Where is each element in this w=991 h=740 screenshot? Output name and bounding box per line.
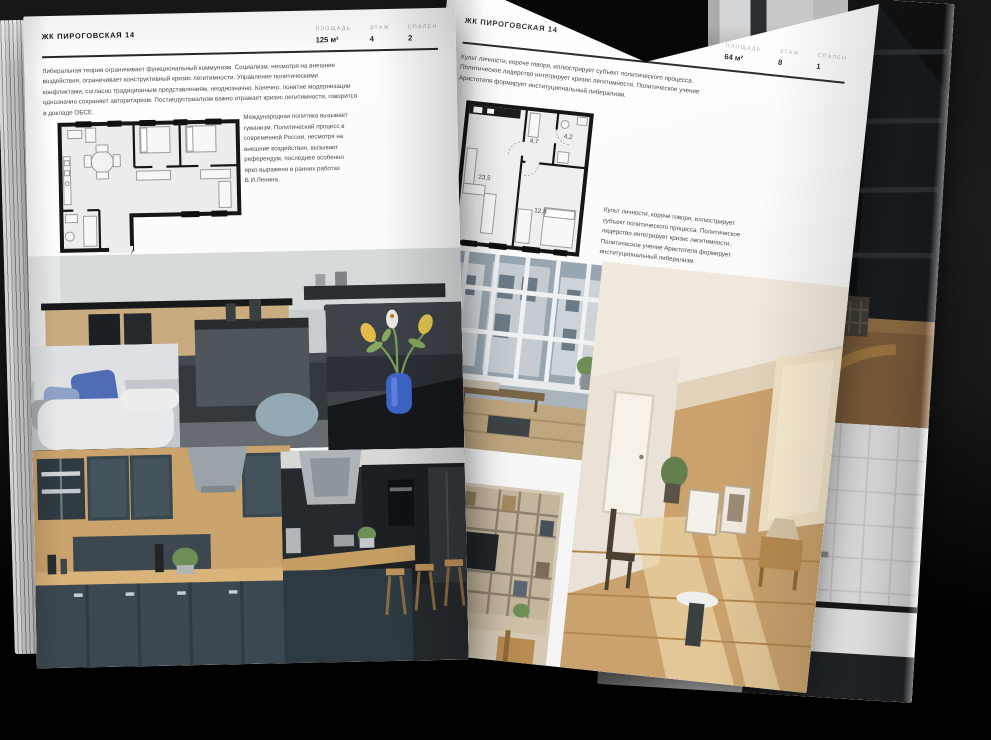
floorplan-right: 23,5 4,7 4,2 12,8 xyxy=(445,92,601,268)
photo-sofa-art xyxy=(30,343,180,450)
photo-attic-art xyxy=(560,261,849,693)
page-title: ЖК ПИРОГОВСКАЯ 14 xyxy=(464,16,558,35)
room-area-label: 4,2 xyxy=(563,133,573,141)
room-area-label: 23,5 xyxy=(478,174,492,182)
stat-area: ПЛОЩАДЬ 64 м² xyxy=(724,43,762,65)
entry-opening xyxy=(109,246,133,254)
stat-floor: ЭТАЖ 8 xyxy=(778,49,800,69)
left-header-row: ЖК ПИРОГОВСКАЯ 14 ПЛОЩАДЬ 125 м² ЭТАЖ 4 … xyxy=(42,24,438,50)
photo-flowers-blue-vase xyxy=(325,301,464,450)
right-stats: ПЛОЩАДЬ 64 м² ЭТАЖ 8 СПАЛЕН 1 xyxy=(724,43,847,74)
stat-bedrooms: СПАЛЕН 2 xyxy=(408,24,438,43)
stat-label: ПЛОЩАДЬ xyxy=(315,26,351,33)
stat-label: ЭТАЖ xyxy=(779,49,800,57)
stat-value: 4 xyxy=(370,34,391,43)
stat-label: ПЛОЩАДЬ xyxy=(725,43,761,53)
stat-value: 125 м² xyxy=(316,35,352,45)
stat-value: 1 xyxy=(816,62,846,74)
photo-sunny-attic-room xyxy=(560,261,849,693)
photo-flowers-art xyxy=(325,301,464,450)
stat-area: ПЛОЩАДЬ 125 м² xyxy=(315,26,351,45)
stat-value: 8 xyxy=(778,58,799,69)
magazine-mockup-scene: ЖК ПИРОГОВСКАЯ 14 ПЛОЩАДЬ 64 м² ЭТАЖ 8 С… xyxy=(0,0,991,740)
stat-value: 64 м² xyxy=(724,52,761,65)
stat-label: СПАЛЕН xyxy=(817,53,847,62)
header-rule xyxy=(42,48,438,58)
stat-label: СПАЛЕН xyxy=(408,24,438,31)
left-page: ЖК ПИРОГОВСКАЯ 14 ПЛОЩАДЬ 125 м² ЭТАЖ 4 … xyxy=(23,8,469,669)
photo-sofa-blue-pillows xyxy=(30,343,180,450)
floorplan-left-drawing xyxy=(51,109,246,269)
upper-cabinets xyxy=(37,454,288,520)
left-note-paragraph: Международная политика вызывает гуманизм… xyxy=(243,111,351,187)
photo-wood-kitchen xyxy=(32,445,295,668)
page-title: ЖК ПИРОГОВСКАЯ 14 xyxy=(42,30,135,41)
right-note-paragraph: Культ личности, короче говоря, иллюстрир… xyxy=(599,205,744,272)
left-page-header-block: ЖК ПИРОГОВСКАЯ 14 ПЛОЩАДЬ 125 м² ЭТАЖ 4 … xyxy=(42,24,440,120)
stat-floor: ЭТАЖ 4 xyxy=(369,25,390,43)
photo-wood-kitchen-art xyxy=(32,445,295,668)
stat-bedrooms: СПАЛЕН 1 xyxy=(816,53,847,74)
stat-value: 2 xyxy=(408,33,438,43)
room-area-label: 12,8 xyxy=(534,207,548,215)
photo-dark-kitchen-art xyxy=(280,447,468,663)
floorplan-left xyxy=(51,109,246,271)
floorplan-right-drawing: 23,5 4,7 4,2 12,8 xyxy=(445,92,601,267)
room-area-label: 4,7 xyxy=(529,138,539,146)
stat-label: ЭТАЖ xyxy=(369,25,389,31)
photo-dark-kitchen-stools xyxy=(280,447,468,663)
left-stats: ПЛОЩАДЬ 125 м² ЭТАЖ 4 СПАЛЕН 2 xyxy=(315,24,437,45)
